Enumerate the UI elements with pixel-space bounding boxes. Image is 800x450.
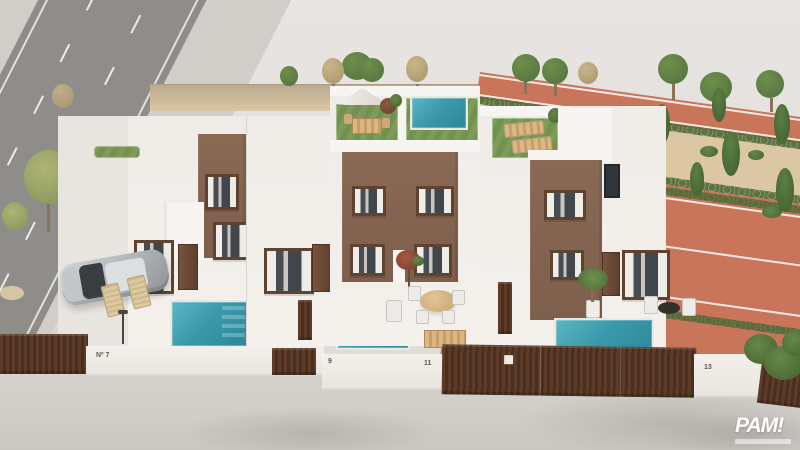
boulevard-tree [512,54,540,82]
yard-divider-fence [298,300,312,340]
tree-trunk [554,82,557,96]
sidewalk-tree [2,202,28,230]
cypress-tree [712,88,726,122]
house-3-window [416,186,454,216]
house-4-patio-window [622,250,670,300]
tree-trunk [770,98,773,112]
cypress-tree [776,168,794,212]
gate-seam [540,346,542,396]
palm-fronds [578,268,608,290]
front-fence [0,334,88,374]
front-gate [272,348,316,375]
house-4-upper-window [544,190,586,220]
patio-chair [386,300,402,322]
dining-chair [452,290,465,305]
bistro-table [658,302,680,314]
dining-chair [442,310,455,324]
house-3-window [352,186,386,216]
house-2-patio-window [264,248,314,294]
path-tree [322,58,344,84]
bush [700,146,718,157]
watermark: PAM! [735,414,797,446]
bush [762,206,782,218]
sidewalk-tree [52,84,74,108]
path-tree [280,66,298,86]
house-2-front-door [312,244,332,292]
cypress-tree [690,162,704,196]
path-tree [360,58,384,82]
boulevard-tree [542,58,568,84]
path-tree [406,56,428,82]
house-3-window [350,244,385,276]
watermark-logo: PAM! [735,414,797,438]
rooftop-jacuzzi [410,96,468,130]
dining-chair [416,310,429,324]
lamp-pole [122,314,124,344]
house-number-7: Nº 7 [96,352,109,359]
dining-chair [408,286,421,301]
cypress-tree [774,104,790,144]
house-1-pool [170,300,250,348]
boulevard-tree [658,54,688,84]
tree-trunk [524,80,527,94]
house-3-front-parapet [330,140,480,152]
roof-chair [382,118,390,128]
house-2 [246,116,336,346]
house-4-tower-parapet [528,150,604,160]
house-number-9: 9 [328,358,332,365]
yard-divider-fence [498,282,512,334]
street-lamp [118,310,130,344]
palm-pot [586,300,600,318]
watermark-tagline [735,439,791,444]
roof-chair [344,114,352,124]
bistro-chair [682,298,696,316]
house-1-upper-window [205,174,239,210]
house-1-lower-window [213,222,249,260]
boulevard-tree [756,70,784,98]
sand-patch [0,286,24,300]
cypress-tree [722,132,740,176]
roof-dining-table [352,118,382,134]
tree-shadow [180,408,440,450]
fence-marker [504,355,513,364]
tree-trunk [672,84,675,100]
house-number-11: 11 [424,360,431,367]
render-scene: Nº 7 9 11 13 PAM! [0,0,800,450]
roof-plant [390,94,402,107]
courtyard-plant [412,256,424,266]
pool-steps [222,306,245,343]
bistro-chair [644,296,658,314]
house-1-roof-hedge [94,146,140,158]
dining-table [420,290,456,312]
bush [748,150,764,160]
boulevard-tree [578,62,598,84]
house-1-front-door [178,244,198,290]
house-4-slit-window [604,164,620,198]
house-number-13: 13 [704,364,712,371]
